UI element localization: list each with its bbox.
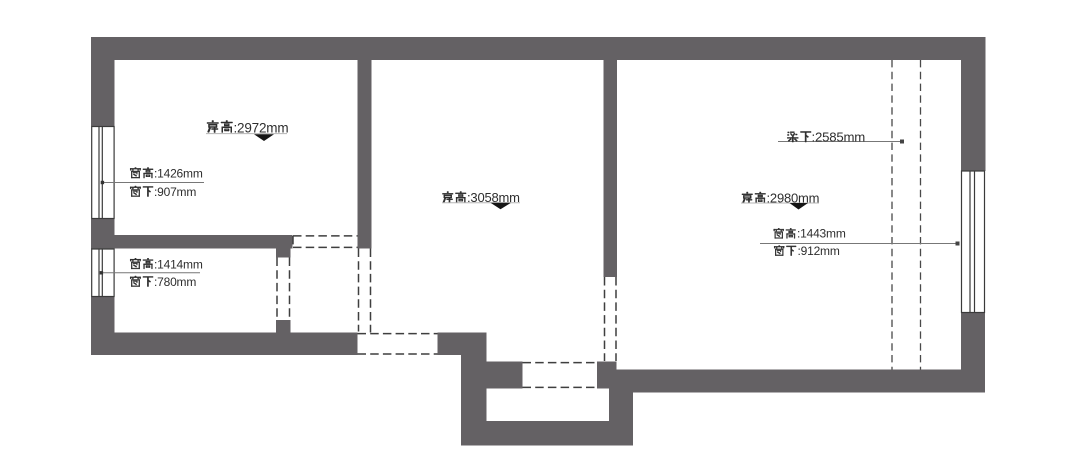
svg-text::1443mm: :1443mm [797, 227, 846, 241]
svg-text::2585mm: :2585mm [812, 130, 866, 145]
svg-text::1414mm: :1414mm [154, 257, 203, 271]
svg-text::780mm: :780mm [154, 275, 196, 289]
svg-text::907mm: :907mm [154, 185, 196, 199]
svg-text::1426mm: :1426mm [154, 167, 203, 181]
svg-text::912mm: :912mm [798, 244, 840, 258]
